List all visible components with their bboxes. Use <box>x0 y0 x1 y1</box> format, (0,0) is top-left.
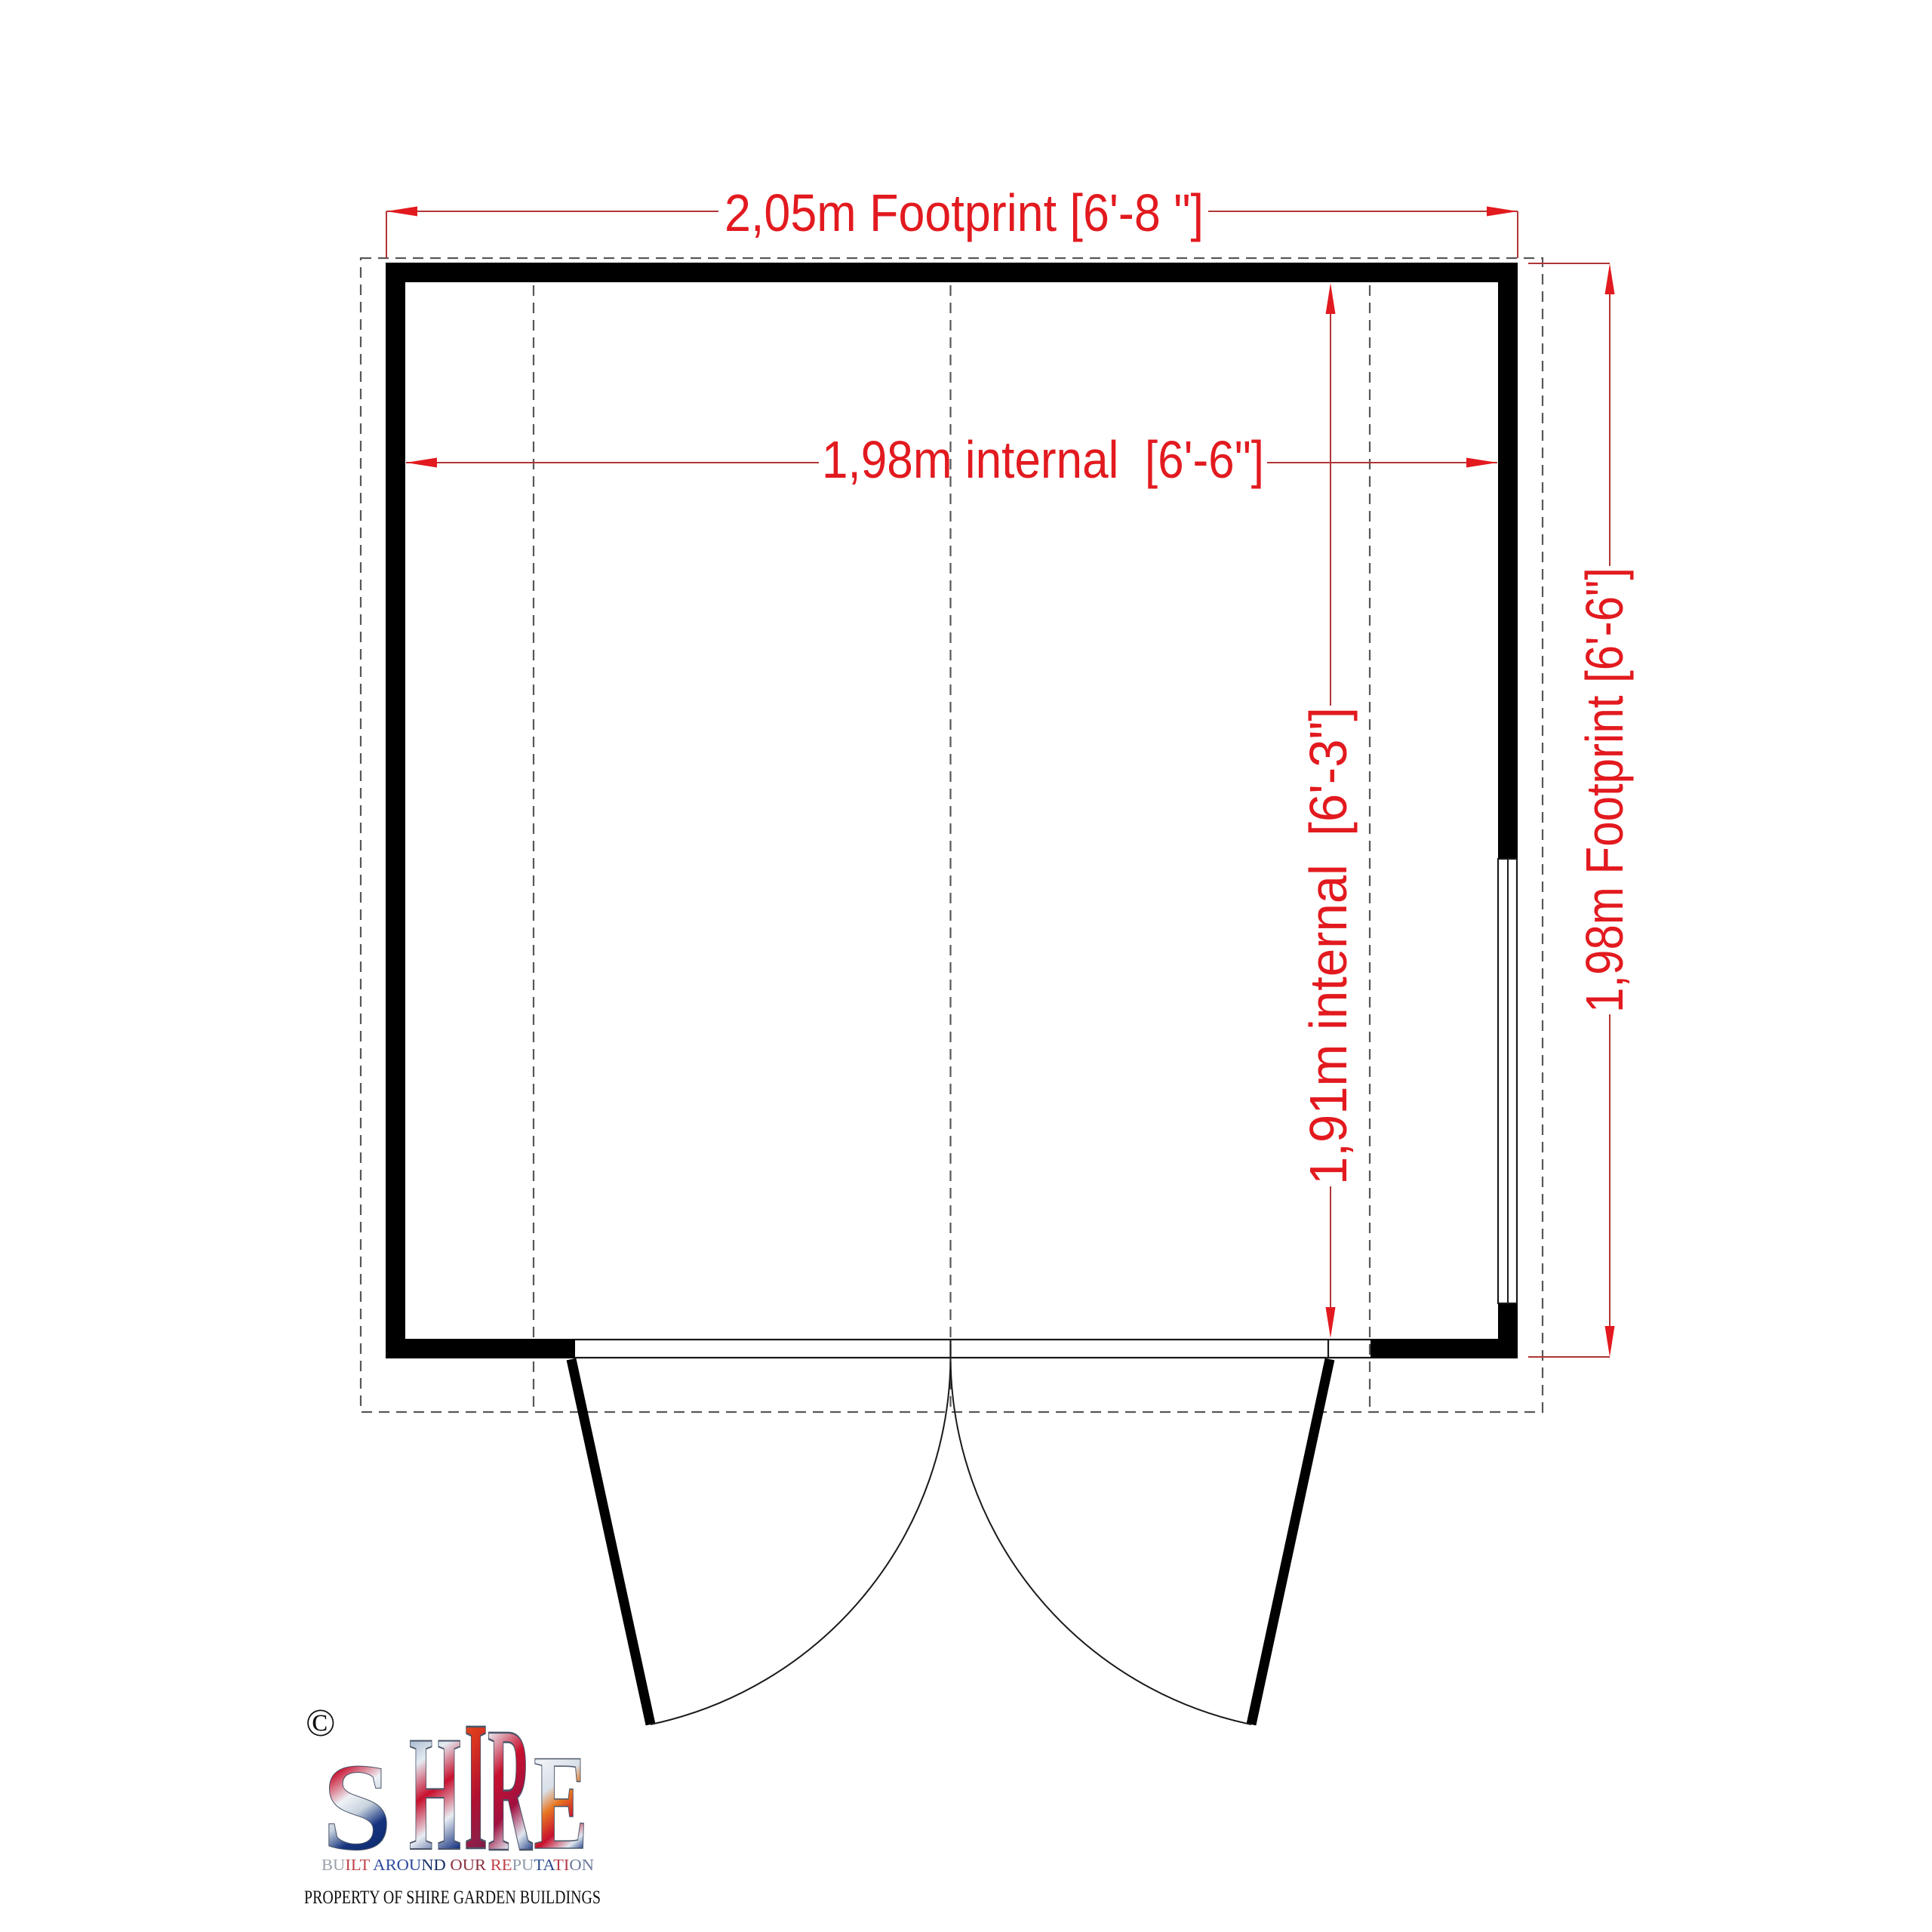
svg-text:1,98m Footprint [6'-6"]: 1,98m Footprint [6'-6"] <box>1575 568 1634 1013</box>
svg-text:1,91m internal [6'-3"]: 1,91m internal [6'-3"] <box>1299 707 1358 1185</box>
svg-text:1,98m internal [6'-6"]: 1,98m internal [6'-6"] <box>822 430 1264 489</box>
svg-text:BUILT AROUND OUR REPUTATION: BUILT AROUND OUR REPUTATION <box>321 1856 594 1874</box>
svg-text:PROPERTY OF SHIRE GARDEN BUILD: PROPERTY OF SHIRE GARDEN BUILDINGS <box>304 1886 601 1908</box>
svg-text:2,05m Footprint [6'-8 "]: 2,05m Footprint [6'-8 "] <box>724 183 1204 242</box>
